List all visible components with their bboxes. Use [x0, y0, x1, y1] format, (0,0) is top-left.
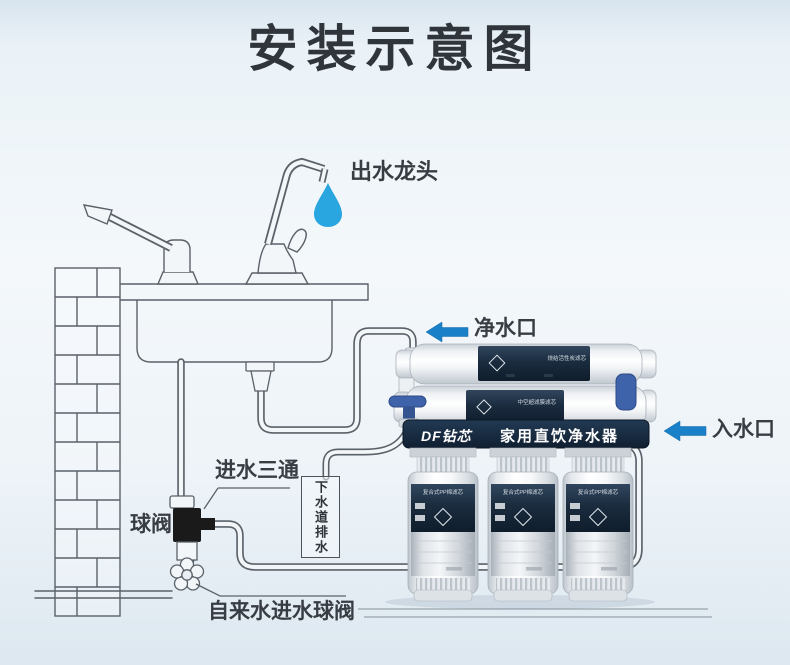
vertical-filter-2: 复合式PP棉滤芯 — [488, 448, 558, 601]
label-pure-water-port: 净水口 — [474, 318, 537, 339]
compression-nut — [170, 496, 194, 508]
sewer-drain-box: 下水道排水 — [301, 476, 340, 558]
water-drop-icon — [314, 183, 342, 227]
vfilter-micro-text: 复合式PP棉滤芯 — [503, 488, 544, 496]
filter2-label — [466, 390, 564, 424]
label-water-inlet-port: 入水口 — [712, 419, 775, 440]
vertical-filter-3: 复合式PP棉滤芯 — [563, 448, 633, 601]
filter2-micro-text: 中空超滤膜滤芯 — [517, 398, 556, 406]
diagram-artwork: 烧结活性炭滤芯 中空超滤膜滤芯 — [0, 0, 790, 665]
water-purifier: 烧结活性炭滤芯 中空超滤膜滤芯 — [385, 344, 656, 609]
purified-water-faucet — [246, 162, 325, 284]
counter-and-sink — [120, 284, 368, 362]
brick-wall — [55, 268, 120, 616]
brand-logo: DF钻芯 — [421, 426, 472, 446]
inlet-arrow-icon — [664, 421, 706, 441]
product-name: 家用直饮净水器 — [500, 425, 619, 446]
label-inlet-tee: 进水三通 — [215, 460, 299, 481]
inlet-tee-assembly — [170, 496, 215, 566]
tee-leader-line — [204, 488, 290, 509]
installation-diagram: 烧结活性炭滤芯 中空超滤膜滤芯 — [0, 0, 790, 665]
tap-valve-leader-line — [196, 584, 346, 596]
ball-valve-body — [173, 508, 201, 542]
faucet-shank-fitting — [246, 362, 274, 391]
label-outlet-faucet: 出水龙头 — [350, 161, 438, 183]
label-ball-valve: 球阀 — [130, 514, 172, 535]
purified-pipe — [261, 331, 413, 430]
filter1-label — [478, 346, 590, 381]
label-tap-water-valve: 自来水进水球阀 — [208, 601, 355, 622]
vfilter-micro-text: 复合式PP棉滤芯 — [423, 488, 464, 496]
vertical-filter-1: 复合式PP棉滤芯 — [408, 448, 478, 601]
tee-lower-body — [177, 542, 197, 560]
tee-branch — [201, 518, 215, 530]
page-title: 安装示意图 — [0, 24, 790, 74]
pure-water-arrow-icon — [426, 322, 468, 342]
blue-elbow-fitting — [616, 374, 636, 410]
vfilter-micro-text: 复合式PP棉滤芯 — [578, 488, 619, 496]
filter1-micro-text: 烧结活性炭滤芯 — [547, 354, 586, 362]
floor-lines — [358, 609, 712, 617]
